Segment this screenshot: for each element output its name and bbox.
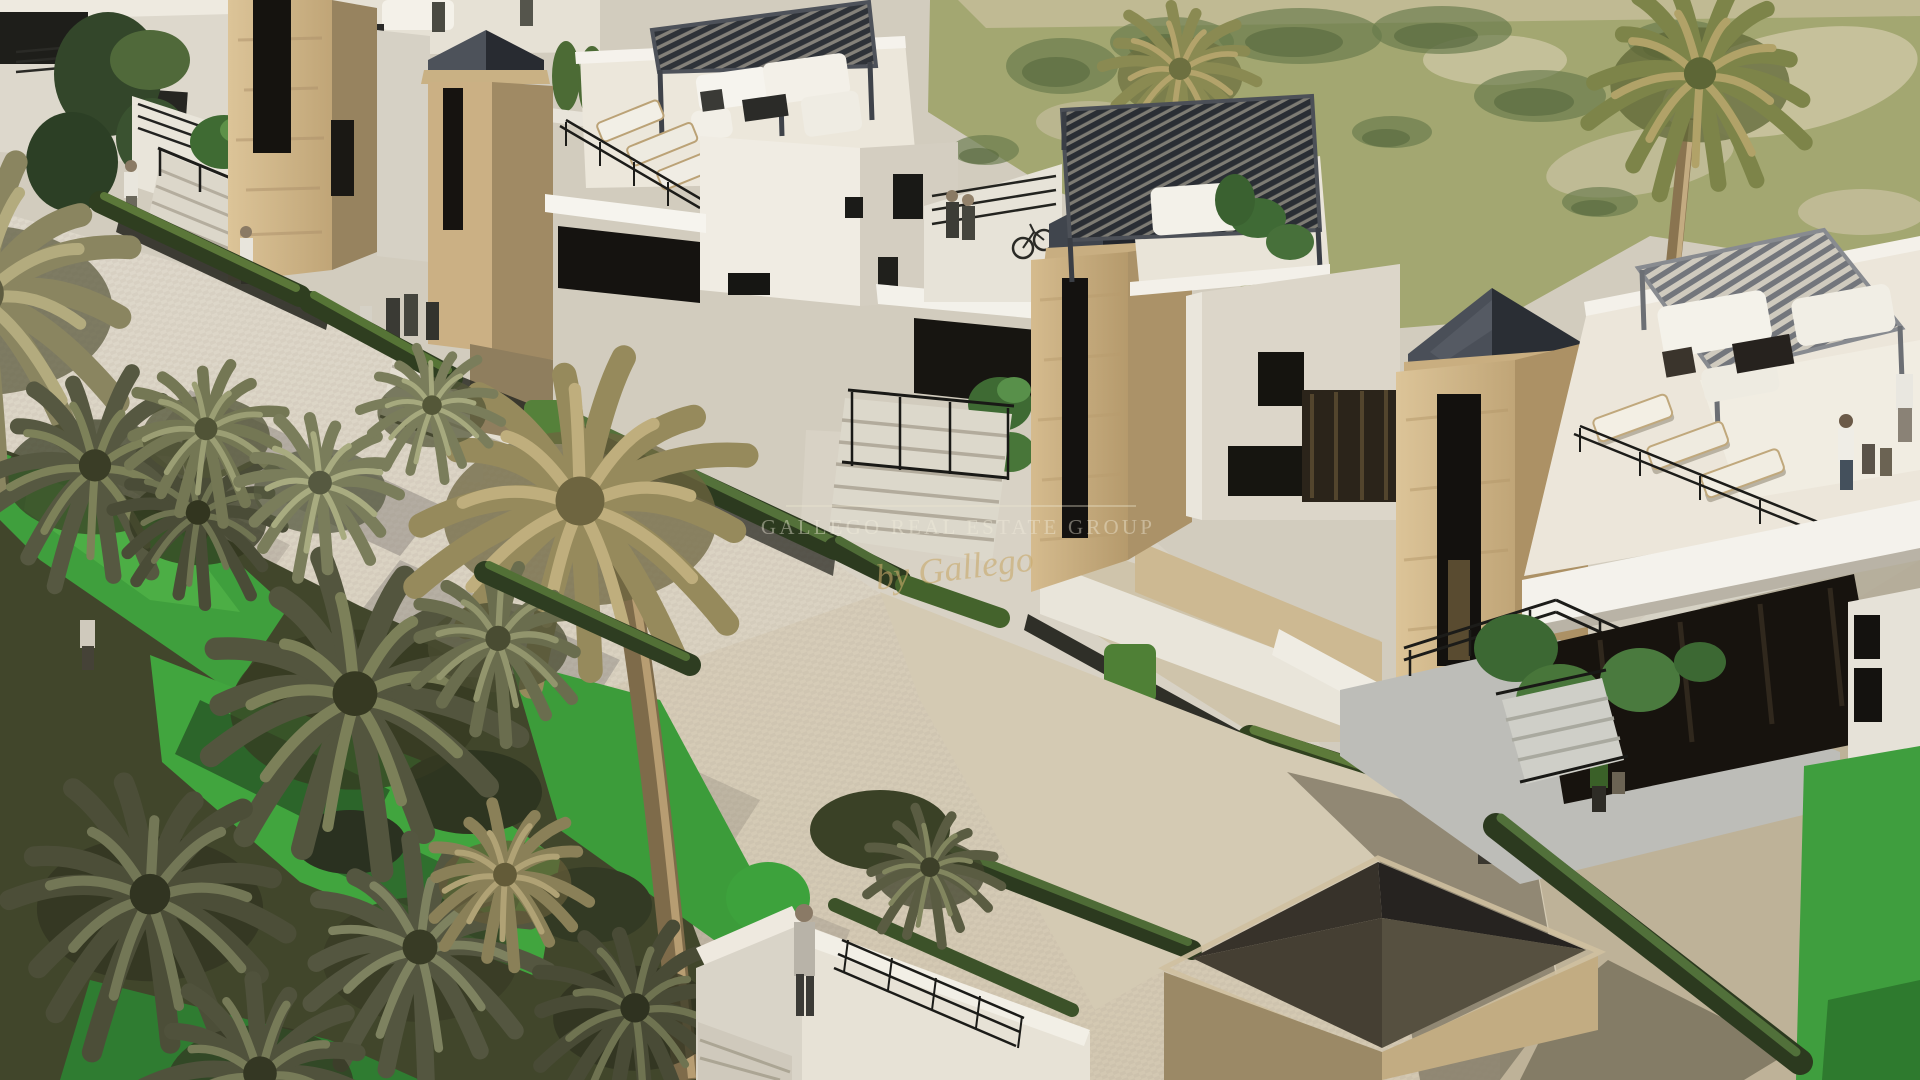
svg-text:GALLEGO REAL ESTATE GROUP: GALLEGO REAL ESTATE GROUP [761, 515, 1155, 539]
